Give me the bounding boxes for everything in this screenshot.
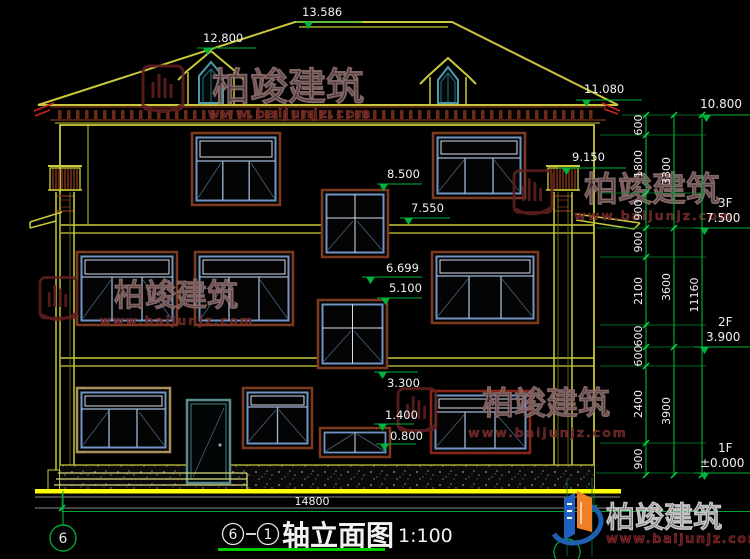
left-awning bbox=[30, 212, 62, 228]
logo-text-url: www.baijunjz.com bbox=[606, 532, 750, 547]
title-axis-a: 6 bbox=[229, 527, 238, 543]
elevation-value: 12.800 bbox=[203, 31, 243, 45]
watermark-text-cn: 柏竣建筑 bbox=[482, 384, 610, 422]
watermark-text-cn: 柏竣建筑 bbox=[212, 65, 364, 109]
watermark-text-cn: 柏竣建筑 bbox=[584, 170, 720, 210]
elevation-value: 7.550 bbox=[411, 201, 444, 215]
axis-number: 6 bbox=[59, 531, 68, 547]
title-name: 轴立面图 bbox=[282, 519, 394, 552]
window-2f-right bbox=[432, 252, 538, 323]
floor-elevation: ±0.000 bbox=[700, 456, 744, 470]
logo-text-cn: 柏竣建筑 bbox=[606, 500, 722, 534]
watermark-left: 柏竣建筑 www.baijunjz.com bbox=[40, 278, 254, 328]
elevation-value: 3.300 bbox=[387, 376, 420, 390]
dim-value: 900 bbox=[632, 232, 645, 253]
pilaster-right-ornament bbox=[554, 196, 572, 211]
right-dimension-chains: 600 1800 900 900 2100 600 600 2400 900 3… bbox=[596, 97, 750, 480]
dormer-right bbox=[420, 58, 476, 105]
width-dim-value: 14800 bbox=[295, 495, 330, 508]
elevation-value: 11.080 bbox=[584, 82, 624, 96]
watermark-text-url: www.baijunjz.com bbox=[468, 425, 628, 440]
title-underline bbox=[218, 548, 385, 551]
floor-elevation: 7.500 bbox=[706, 211, 740, 225]
title-scale: 1:100 bbox=[398, 525, 453, 547]
door-handle bbox=[218, 443, 221, 446]
floor-label: 1F bbox=[718, 441, 733, 455]
axis-bubble-6: 6 bbox=[50, 491, 76, 551]
floor-flag-top: 10.800 bbox=[698, 97, 750, 122]
flag-elevation: 10.800 bbox=[700, 97, 742, 111]
dim-value: 600 bbox=[632, 346, 645, 367]
floor-label: 2F bbox=[718, 315, 733, 329]
inner-chain-values: 600 1800 900 900 2100 600 600 2400 900 bbox=[632, 115, 645, 470]
floor-elevation: 3.900 bbox=[706, 330, 740, 344]
watermark-text-url: www.baijunjz.com bbox=[100, 314, 255, 328]
dim-value: 600 bbox=[632, 115, 645, 136]
elevation-value: 0.800 bbox=[390, 429, 423, 443]
dim-value: 1800 bbox=[632, 150, 645, 178]
watermark-text-url: www.baijunjz.com bbox=[208, 107, 373, 122]
stair-window-lower bbox=[320, 428, 390, 457]
elevation-marker-5100: 5.100 bbox=[377, 281, 422, 305]
elevation-marker-7550: 7.550 bbox=[400, 201, 450, 225]
elevation-marker-3300: 3.300 bbox=[374, 372, 420, 390]
elevation-value: 8.500 bbox=[387, 167, 420, 181]
dim-value: 600 bbox=[632, 326, 645, 347]
cad-elevation-drawing: 柏竣建筑 www.baijunjz.com 柏竣建筑 www.baijunjz.… bbox=[0, 0, 750, 559]
dim-value: 3300 bbox=[660, 157, 673, 185]
title-axis-b: 1 bbox=[264, 527, 273, 543]
elevation-marker-1400: 1.400 bbox=[374, 408, 418, 431]
bottom-width-dimension: 14800 bbox=[35, 494, 620, 512]
window-3f-right bbox=[433, 133, 525, 198]
window-1f-center bbox=[243, 388, 312, 448]
pilaster-left-ornament bbox=[56, 196, 74, 211]
dim-value: 900 bbox=[632, 200, 645, 221]
watermark-logo-icon bbox=[40, 278, 77, 320]
stair-window-middle bbox=[318, 300, 387, 368]
stair-window-upper bbox=[322, 190, 388, 257]
dim-value: 3600 bbox=[660, 273, 673, 301]
dim-value: 900 bbox=[632, 449, 645, 470]
window-1f-left bbox=[77, 388, 170, 452]
floor-label: 3F bbox=[718, 196, 733, 210]
drawing-title: 6 1 轴立面图 1:100 bbox=[218, 519, 453, 552]
entry-door bbox=[187, 400, 230, 483]
elevation-marker-13586: 13.586 bbox=[296, 5, 362, 29]
dim-value: 3900 bbox=[660, 397, 673, 425]
pilaster-left bbox=[30, 166, 82, 490]
elevation-value: 5.100 bbox=[389, 281, 422, 295]
elevation-value: 9.150 bbox=[572, 150, 605, 164]
dim-value: 2400 bbox=[632, 390, 645, 418]
elevation-value: 6.699 bbox=[386, 261, 419, 275]
dim-value: 2100 bbox=[632, 277, 645, 305]
watermark-right: 柏竣建筑 www.baijunjz.com bbox=[514, 170, 734, 223]
ground-line bbox=[35, 489, 621, 494]
elevation-marker-11080: 11.080 bbox=[576, 82, 642, 107]
elevation-marker-8500: 8.500 bbox=[377, 167, 422, 191]
total-height-dim: 11160 bbox=[688, 278, 701, 313]
window-3f-left bbox=[192, 133, 280, 205]
elevation-value: 13.586 bbox=[302, 5, 342, 19]
drawing-canvas: 柏竣建筑 www.baijunjz.com 柏竣建筑 www.baijunjz.… bbox=[0, 0, 750, 559]
watermark-text-cn: 柏竣建筑 bbox=[114, 278, 238, 314]
elevation-marker-12800: 12.800 bbox=[197, 31, 256, 55]
elevation-value: 1.400 bbox=[385, 408, 418, 422]
